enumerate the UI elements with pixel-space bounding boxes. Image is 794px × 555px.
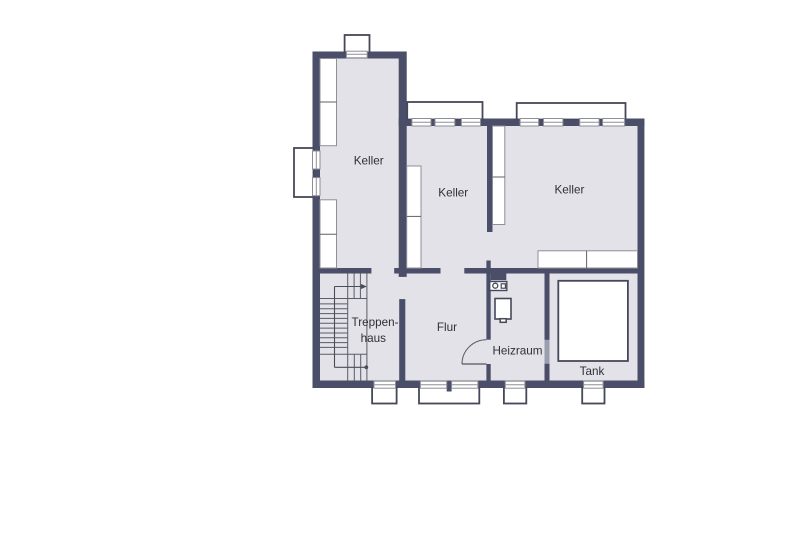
svg-text:Tank: Tank [580,365,605,378]
svg-text:Keller: Keller [554,184,584,197]
svg-text:Heizraum: Heizraum [492,344,542,357]
svg-text:Keller: Keller [438,187,468,200]
svg-text:Keller: Keller [354,154,384,167]
svg-text:haus: haus [361,332,387,345]
svg-text:Flur: Flur [437,321,457,334]
svg-text:Treppen-: Treppen- [352,316,399,329]
